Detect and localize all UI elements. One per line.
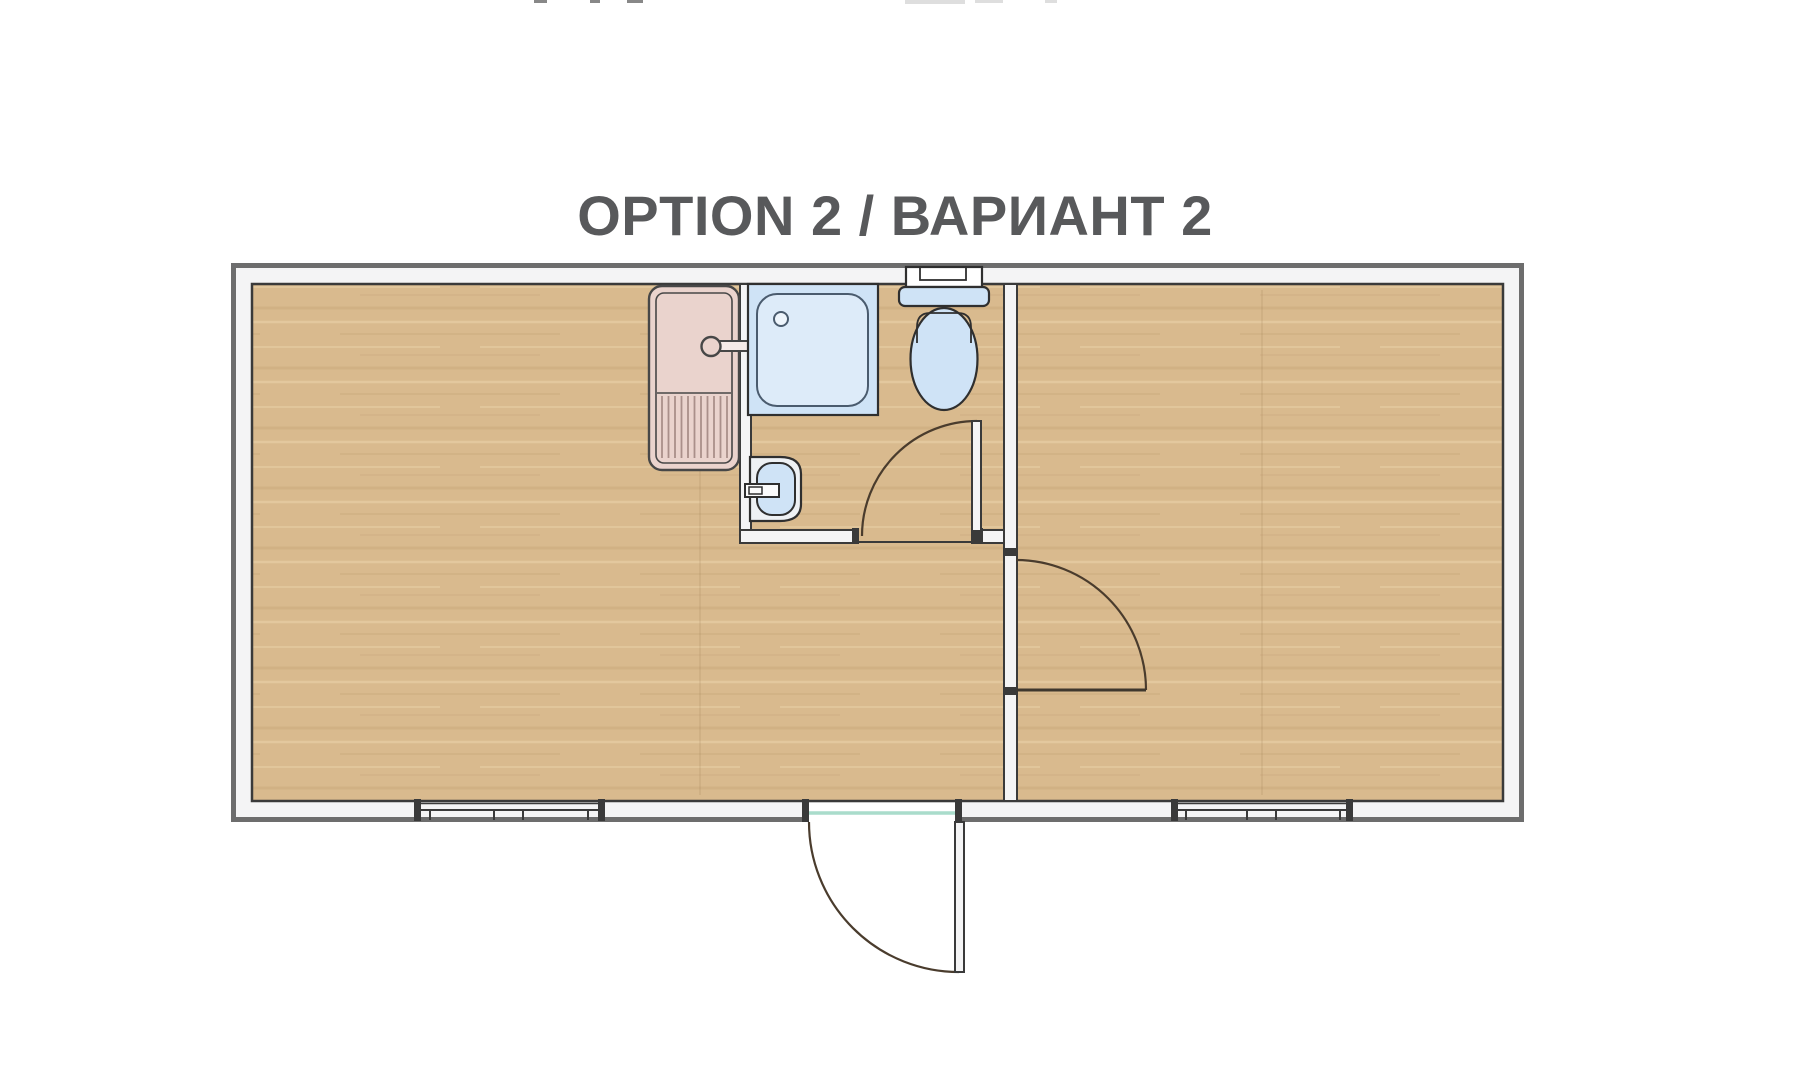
hand-wash-basin (745, 457, 801, 521)
bathroom-bottom-wall (740, 530, 858, 543)
toilet-bowl (911, 308, 978, 410)
faucet-knob (702, 337, 721, 356)
entrance-door-swing-arc (809, 822, 959, 972)
shower (748, 284, 878, 415)
shower-tray (757, 294, 868, 406)
floor-plan-canvas (0, 0, 1802, 1090)
cistern (906, 267, 982, 287)
entrance-door (802, 799, 964, 972)
page: OPTION 2 / ВАРИАНТ 2 (0, 0, 1802, 1090)
bathroom-door-leaf (972, 421, 981, 531)
faucet-pipe (719, 341, 750, 351)
shower-drain (774, 312, 788, 326)
room-divider-wall (1004, 284, 1017, 801)
sink-unit-with-drainboard (649, 286, 750, 470)
entrance-door-leaf (955, 822, 964, 972)
cistern-lid (899, 287, 989, 306)
cropped-text-remnant (534, 0, 1057, 4)
